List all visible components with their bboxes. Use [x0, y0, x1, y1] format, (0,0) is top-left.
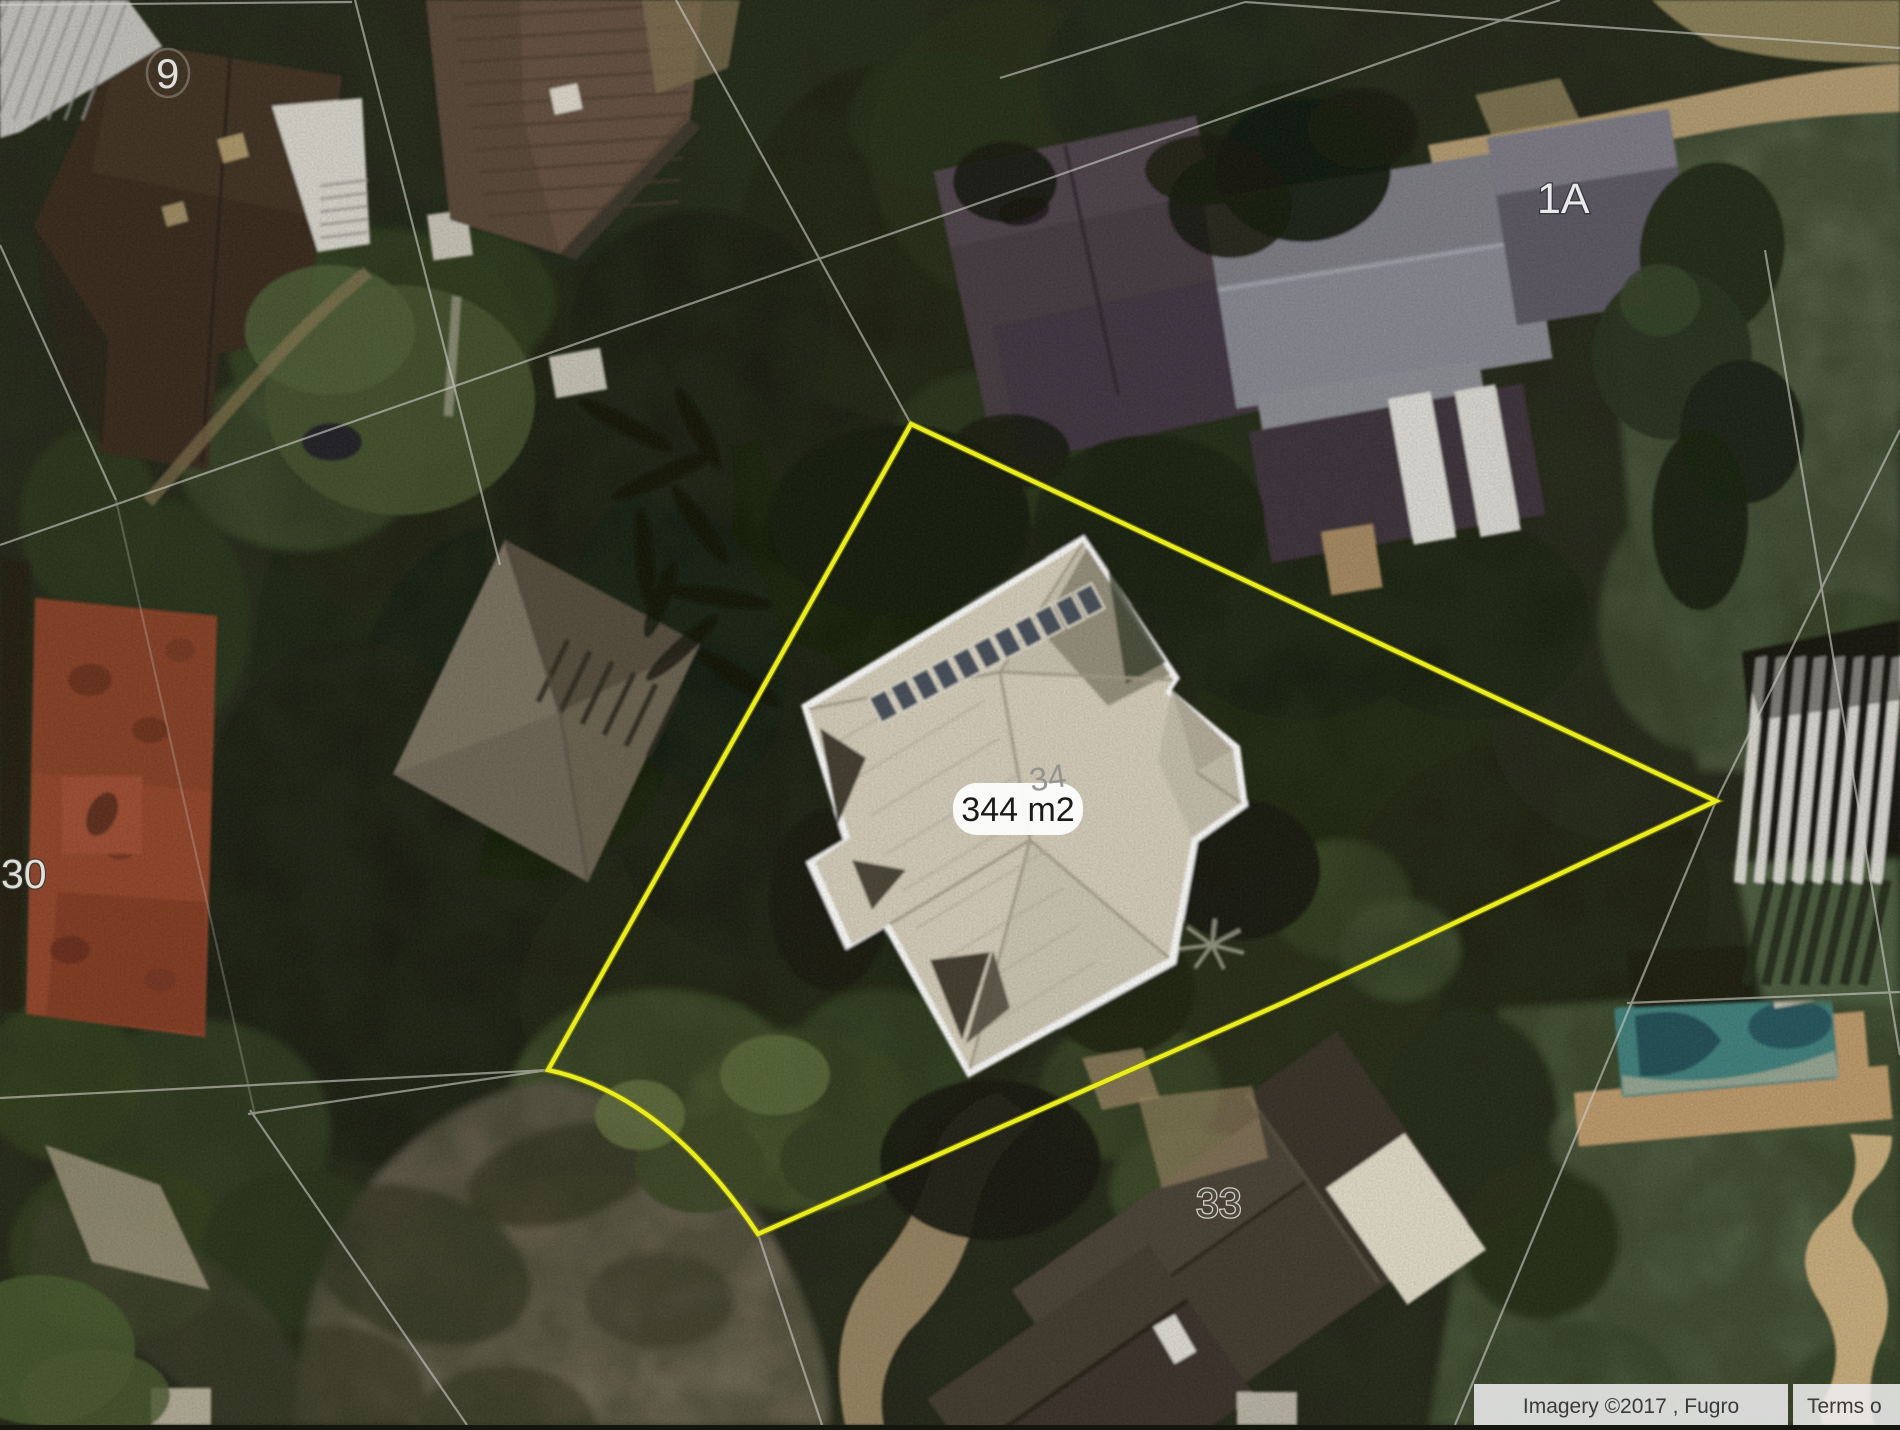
svg-text:9: 9 [156, 50, 179, 97]
svg-text:30: 30 [1, 851, 47, 897]
svg-text:1A: 1A [1537, 175, 1590, 223]
svg-text:Terms o: Terms o [1807, 1395, 1882, 1418]
svg-text:Imagery ©2017 , Fugro: Imagery ©2017 , Fugro [1523, 1395, 1739, 1418]
svg-text:33: 33 [1196, 1180, 1242, 1226]
svg-text:344 m2: 344 m2 [961, 791, 1074, 829]
